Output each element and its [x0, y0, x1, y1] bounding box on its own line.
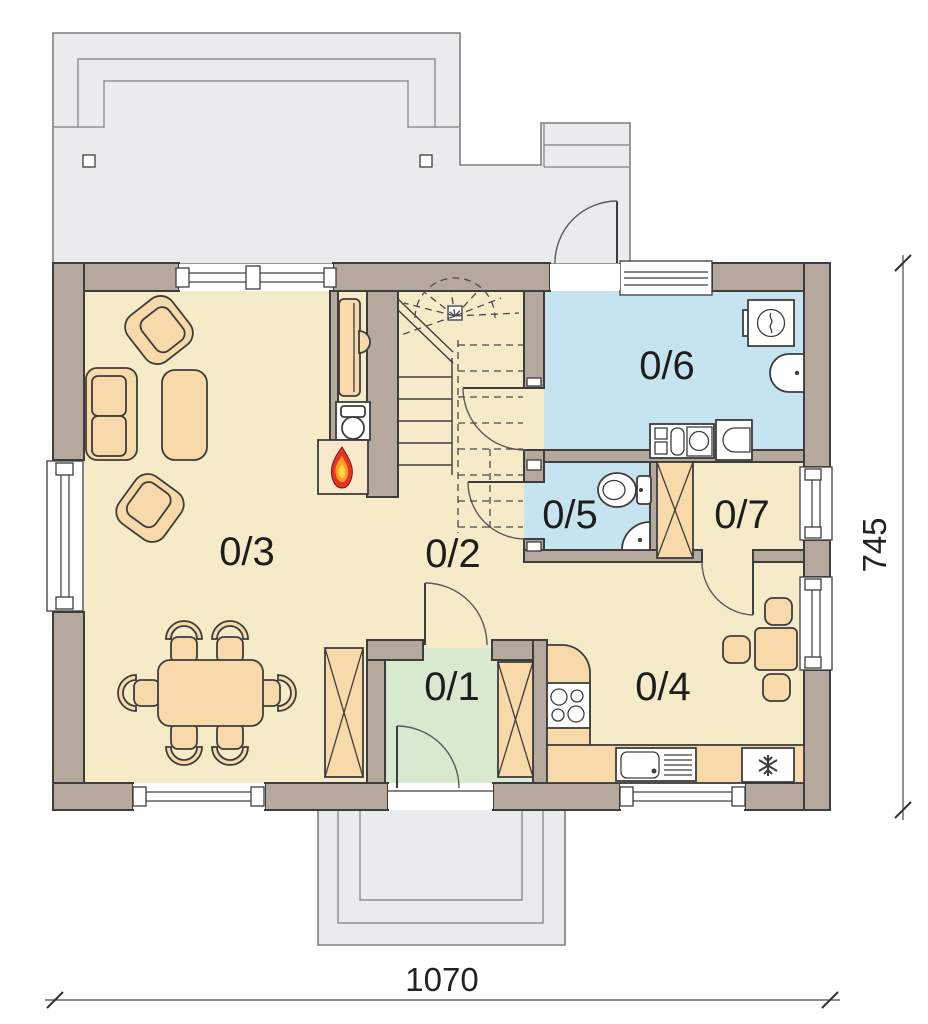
dimension-bottom: 1070 — [45, 961, 840, 1008]
wall-hall01-right — [533, 640, 547, 783]
wood-stove — [336, 402, 370, 440]
wall-hall01-top-left — [367, 640, 423, 660]
rear-terrace — [53, 33, 630, 264]
room-label-01: 0/1 — [424, 665, 480, 709]
window-bath06-top — [620, 261, 712, 295]
terrace-post — [83, 155, 95, 167]
terrace-post — [420, 155, 432, 167]
toilet — [650, 424, 714, 458]
dining-table — [158, 660, 263, 726]
wardrobe — [657, 462, 693, 558]
toilet — [598, 473, 651, 507]
dimension-height-label: 745 — [856, 517, 893, 572]
wall-right-pier — [804, 540, 830, 577]
kitchen-chair — [765, 598, 792, 625]
kitchen-chair — [723, 636, 750, 663]
window-kitchen-bottom — [620, 784, 745, 809]
door-jamb-slot — [527, 460, 541, 470]
wall-bath06-left — [524, 291, 544, 388]
room-label-03: 0/3 — [219, 530, 275, 574]
kitchen-chair — [763, 674, 790, 701]
washing-machine — [743, 300, 794, 346]
window-living-left — [47, 461, 83, 611]
floor-plan-page: 0/1 0/2 0/3 0/4 0/5 0/6 0/7 1070 745 — [0, 0, 928, 1024]
wall-bottom-middle — [493, 783, 620, 810]
wall-right-upper — [804, 263, 830, 467]
room-label-06: 0/6 — [639, 344, 695, 388]
door-jamb-slot — [527, 542, 541, 551]
wardrobe — [325, 648, 363, 777]
dimension-width-label: 1070 — [405, 961, 478, 998]
wall-bottom-left — [53, 783, 133, 810]
fridge-freezer — [742, 748, 794, 782]
window-living-top — [176, 264, 336, 290]
window-room07-right — [800, 467, 832, 540]
wall-chimney-stair — [367, 291, 398, 497]
cooktop — [547, 683, 590, 728]
wall-hall01-left — [367, 640, 385, 783]
tv-cabinet — [339, 299, 360, 396]
entrance-porch — [318, 810, 565, 945]
door-jamb-slot — [527, 378, 541, 386]
wall-top-middle — [333, 263, 550, 291]
bidet — [716, 420, 752, 460]
floor-plan-drawing: 0/1 0/2 0/3 0/4 0/5 0/6 0/7 1070 745 — [0, 0, 928, 1024]
sofa — [86, 368, 137, 460]
dimension-right: 745 — [856, 255, 911, 820]
washbasin — [770, 354, 804, 392]
wall-left-lower — [53, 612, 84, 790]
room-label-02: 0/2 — [425, 532, 481, 576]
coffee-table — [162, 370, 207, 460]
wall-left-upper — [53, 263, 84, 460]
kitchen-table — [755, 628, 797, 670]
room-label-07: 0/7 — [714, 493, 770, 537]
fireplace — [318, 440, 368, 494]
wall-right-lower — [804, 670, 830, 810]
wall-bottom-left2 — [265, 783, 388, 810]
wardrobe — [498, 662, 533, 777]
wall-room07-bottom — [753, 550, 804, 562]
room-label-05: 0/5 — [542, 493, 598, 537]
window-kitchen-right — [800, 577, 832, 670]
window-dining-bottom — [133, 784, 265, 809]
room-label-04: 0/4 — [635, 665, 691, 709]
kitchen-sink — [616, 748, 696, 781]
